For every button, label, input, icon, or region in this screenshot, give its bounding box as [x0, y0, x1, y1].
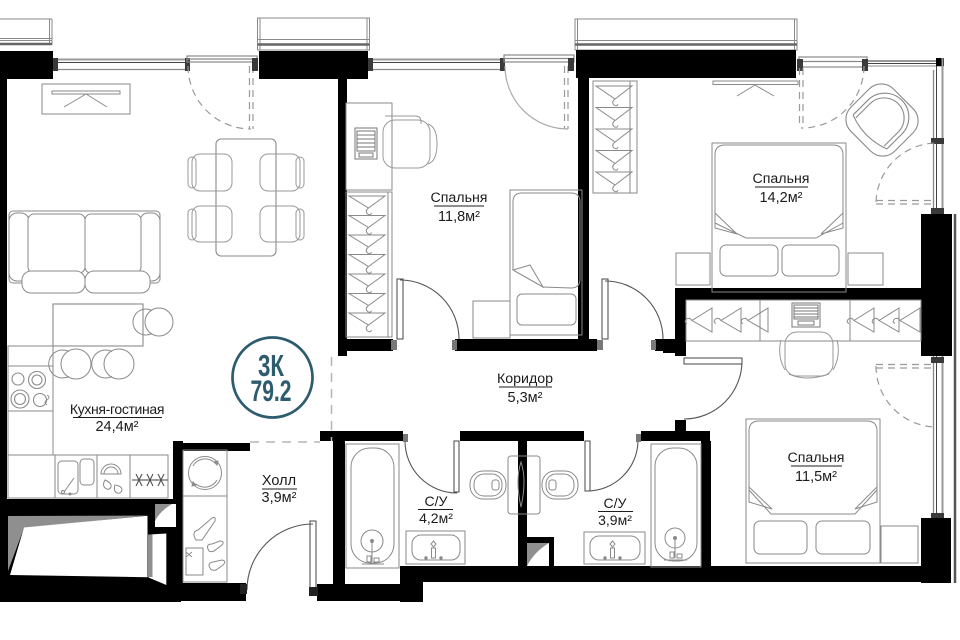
svg-text:Спальня: Спальня [430, 190, 487, 206]
svg-text:14,2м²: 14,2м² [759, 190, 802, 206]
svg-text:С/У: С/У [425, 493, 448, 509]
svg-text:Спальня: Спальня [752, 171, 809, 187]
svg-text:79.2: 79.2 [251, 375, 292, 408]
svg-text:Холл: Холл [262, 473, 296, 489]
svg-text:3,9м²: 3,9м² [598, 512, 632, 528]
svg-text:11,8м²: 11,8м² [438, 209, 480, 225]
svg-text:3,9м²: 3,9м² [262, 490, 297, 506]
svg-text:5,3м²: 5,3м² [508, 390, 543, 406]
svg-text:С/У: С/У [604, 495, 627, 511]
svg-text:Коридор: Коридор [497, 371, 553, 387]
svg-text:Спальня: Спальня [787, 450, 844, 466]
svg-text:Кухня-гостиная: Кухня-гостиная [70, 401, 164, 417]
svg-text:24,4м²: 24,4м² [95, 419, 138, 435]
svg-text:11,5м²: 11,5м² [795, 469, 837, 485]
svg-text:4,2м²: 4,2м² [419, 510, 453, 526]
